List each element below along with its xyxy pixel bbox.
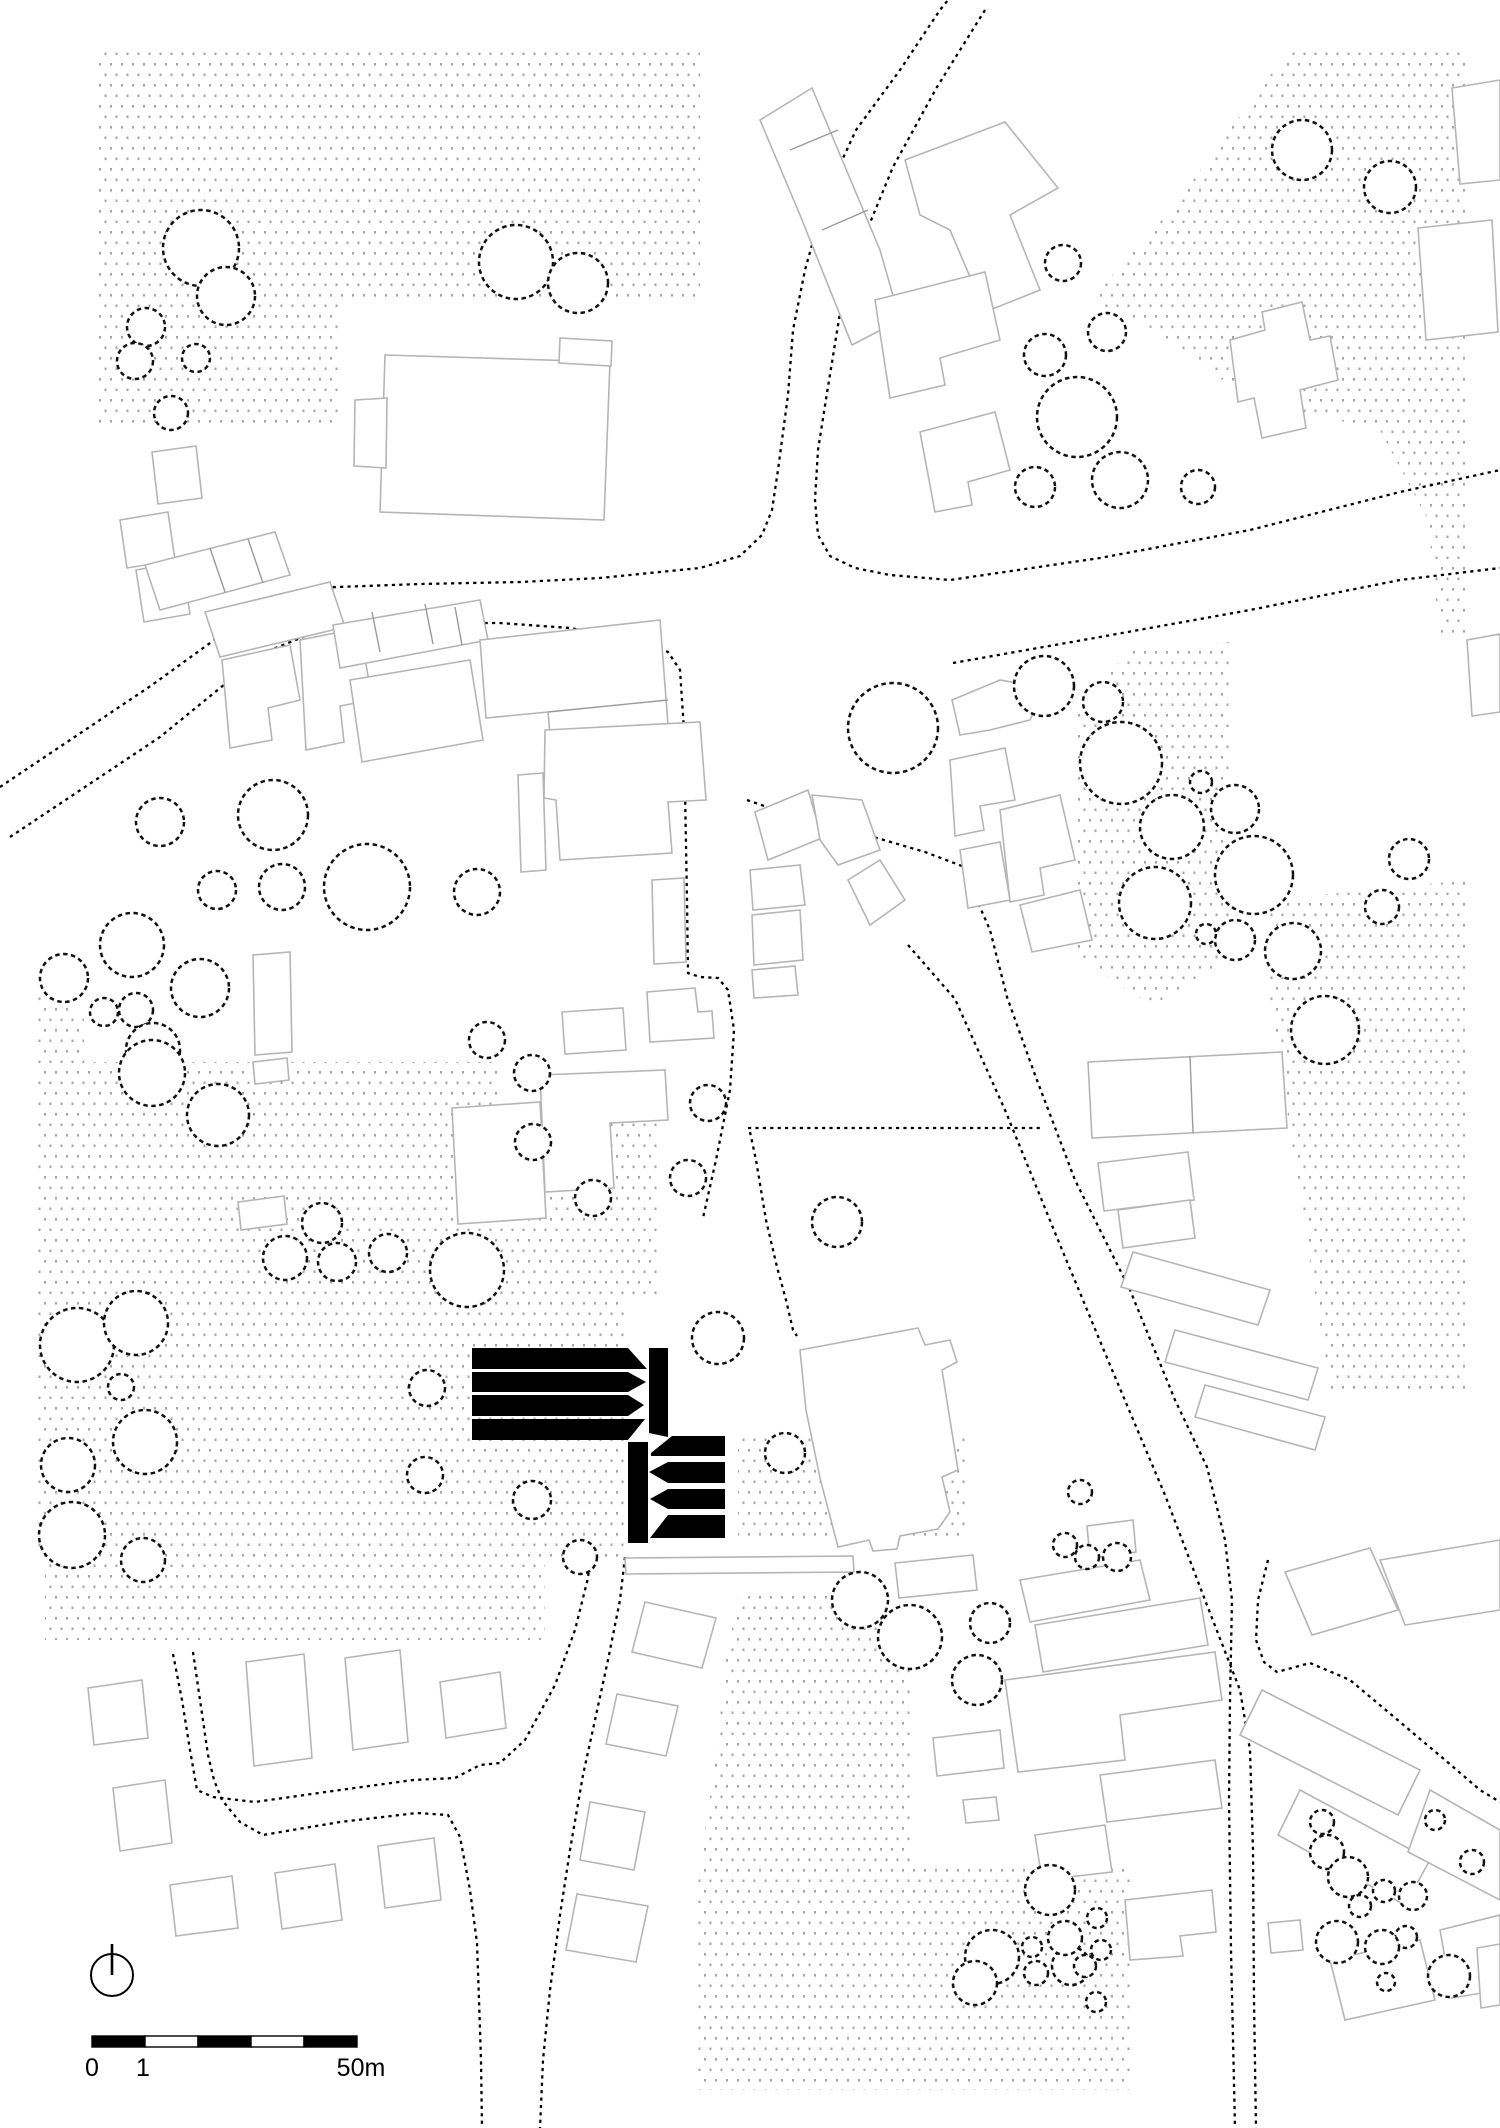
tree xyxy=(1365,1930,1399,1964)
building-footprint xyxy=(895,1555,977,1598)
scale-bar-segment xyxy=(251,2036,304,2047)
tree xyxy=(407,1457,443,1493)
building-footprint xyxy=(963,1797,999,1823)
tree xyxy=(1092,452,1148,508)
tree xyxy=(1091,1940,1111,1960)
building-footprint xyxy=(752,910,803,965)
tree xyxy=(1053,1533,1077,1557)
tree xyxy=(1014,656,1074,716)
tree xyxy=(1428,1955,1470,1997)
tree xyxy=(1365,890,1399,924)
building-footprint xyxy=(933,1730,1004,1776)
building-footprint xyxy=(1418,220,1498,340)
building-footprint xyxy=(1477,1944,1500,2008)
building-footprint xyxy=(238,1196,287,1230)
tree xyxy=(108,1374,134,1400)
tree xyxy=(1272,120,1332,180)
tree xyxy=(430,1233,504,1307)
tree xyxy=(1103,1543,1131,1571)
project-building-roof xyxy=(472,1372,646,1392)
tree xyxy=(198,871,236,909)
building-footprint xyxy=(566,1894,648,1962)
tree xyxy=(1045,245,1081,281)
tree xyxy=(113,1410,177,1474)
building-footprint xyxy=(580,1802,645,1870)
site-plan-drawing: 0 1 50m xyxy=(0,0,1500,2128)
tree xyxy=(1140,795,1204,859)
scale-label-50m: 50m xyxy=(337,2054,386,2082)
tree xyxy=(765,1433,805,1473)
tree xyxy=(182,344,210,372)
tree xyxy=(1211,785,1259,833)
tree xyxy=(197,267,255,325)
tree xyxy=(1074,1955,1096,1977)
tree xyxy=(136,798,184,846)
tree xyxy=(171,959,229,1017)
tree xyxy=(39,1502,105,1568)
building-footprint xyxy=(345,1650,408,1750)
tree xyxy=(1075,1545,1099,1569)
tree xyxy=(848,683,938,773)
tree xyxy=(513,1481,551,1519)
tree xyxy=(479,225,553,299)
building-footprint xyxy=(1268,1920,1303,1953)
scale-bar-segment xyxy=(198,2036,251,2047)
tree xyxy=(953,1961,997,2005)
tree xyxy=(1460,1850,1484,1874)
tree xyxy=(259,864,305,910)
tree xyxy=(1425,1810,1445,1830)
building-footprint xyxy=(625,1556,854,1574)
tree xyxy=(409,1370,445,1406)
site-plan-page: 0 1 50m xyxy=(0,0,1500,2128)
tree xyxy=(41,1438,95,1492)
building-footprint xyxy=(88,1680,148,1745)
building-footprint xyxy=(354,398,387,468)
scale-bar-segment xyxy=(304,2036,357,2047)
tree xyxy=(1024,334,1066,376)
tree xyxy=(1373,1880,1395,1902)
tree xyxy=(369,1234,407,1272)
tree xyxy=(1316,1921,1358,1963)
tree xyxy=(469,1022,505,1058)
tree xyxy=(548,253,608,313)
project-building-roof xyxy=(472,1419,645,1440)
tree xyxy=(1389,839,1429,879)
building-footprint xyxy=(1467,634,1500,716)
building-footprint xyxy=(960,842,1010,908)
building-footprint xyxy=(1452,80,1500,184)
tree xyxy=(1196,924,1216,944)
tree xyxy=(970,1603,1010,1643)
building-footprint xyxy=(518,773,546,872)
tree xyxy=(515,1124,551,1160)
tree xyxy=(40,954,88,1002)
tree xyxy=(187,1084,249,1146)
tree xyxy=(1215,836,1293,914)
tree xyxy=(692,1312,744,1364)
building-footprint xyxy=(380,355,610,520)
tree xyxy=(324,844,410,930)
tree xyxy=(1080,722,1162,804)
tree xyxy=(878,1605,942,1669)
tree xyxy=(302,1203,342,1243)
scale-label-zero: 0 xyxy=(85,2054,99,2082)
tree xyxy=(119,1040,185,1106)
tree xyxy=(1190,771,1212,793)
tree xyxy=(1037,377,1117,457)
project-building-roof xyxy=(628,1442,648,1543)
building-footprint xyxy=(170,1876,238,1936)
tree xyxy=(1181,470,1215,504)
tree xyxy=(1399,1882,1427,1910)
building-footprint xyxy=(752,966,798,998)
building-footprint xyxy=(253,952,292,1055)
tree xyxy=(1025,1865,1075,1915)
scale-bar-segment xyxy=(92,2036,145,2047)
tree xyxy=(318,1243,356,1281)
tree xyxy=(1328,1857,1368,1897)
tree xyxy=(1024,1961,1048,1985)
building-footprint xyxy=(275,1864,342,1929)
project-building-roof xyxy=(472,1348,647,1369)
building-footprint xyxy=(559,338,612,366)
tree xyxy=(1119,867,1191,939)
building-footprint xyxy=(440,1672,506,1738)
tree xyxy=(1265,923,1321,979)
tree xyxy=(1310,1810,1334,1834)
tree xyxy=(119,993,153,1027)
tree xyxy=(514,1055,550,1091)
scale-label-one: 1 xyxy=(136,2054,150,2082)
tree xyxy=(1087,1908,1107,1928)
tree xyxy=(1048,1921,1082,1955)
building-footprint xyxy=(606,1694,678,1756)
tree xyxy=(1015,467,1055,507)
tree xyxy=(127,308,165,346)
building-footprint xyxy=(253,1058,289,1084)
tree xyxy=(263,1236,307,1280)
project-building-roof xyxy=(472,1395,644,1416)
tree xyxy=(812,1197,862,1247)
tree xyxy=(1291,996,1359,1064)
tree xyxy=(1364,161,1416,213)
tree xyxy=(104,1291,168,1355)
tree xyxy=(454,869,500,915)
tree xyxy=(238,780,308,850)
tree xyxy=(121,1538,165,1582)
building-footprint xyxy=(152,446,202,504)
tree xyxy=(670,1160,706,1196)
tree xyxy=(563,1540,597,1574)
tree xyxy=(117,343,153,379)
scale-bar xyxy=(92,2036,357,2047)
tree xyxy=(690,1085,726,1121)
tree xyxy=(90,998,118,1026)
building-footprint xyxy=(562,1008,626,1054)
building-footprint xyxy=(113,1780,172,1851)
scale-bar-segment xyxy=(145,2036,198,2047)
project-building-roof xyxy=(649,1348,668,1437)
tree xyxy=(952,1655,1002,1705)
tree xyxy=(1349,1895,1371,1917)
building-footprint xyxy=(378,1838,441,1908)
building-footprint xyxy=(246,1654,312,1766)
tree xyxy=(1022,1937,1042,1957)
building-footprint xyxy=(1088,1052,1287,1138)
building-footprint xyxy=(750,865,805,910)
building-footprint xyxy=(452,1102,546,1224)
tree xyxy=(1083,682,1123,722)
tree xyxy=(1086,1992,1106,2012)
tree xyxy=(832,1572,888,1628)
tree xyxy=(1088,313,1126,351)
building-footprint xyxy=(652,878,686,964)
tree xyxy=(154,396,188,430)
tree xyxy=(40,1308,114,1382)
tree xyxy=(1068,1480,1092,1504)
tree xyxy=(100,913,164,977)
tree xyxy=(575,1180,611,1216)
tree xyxy=(1377,1973,1395,1991)
tree xyxy=(1215,920,1255,960)
